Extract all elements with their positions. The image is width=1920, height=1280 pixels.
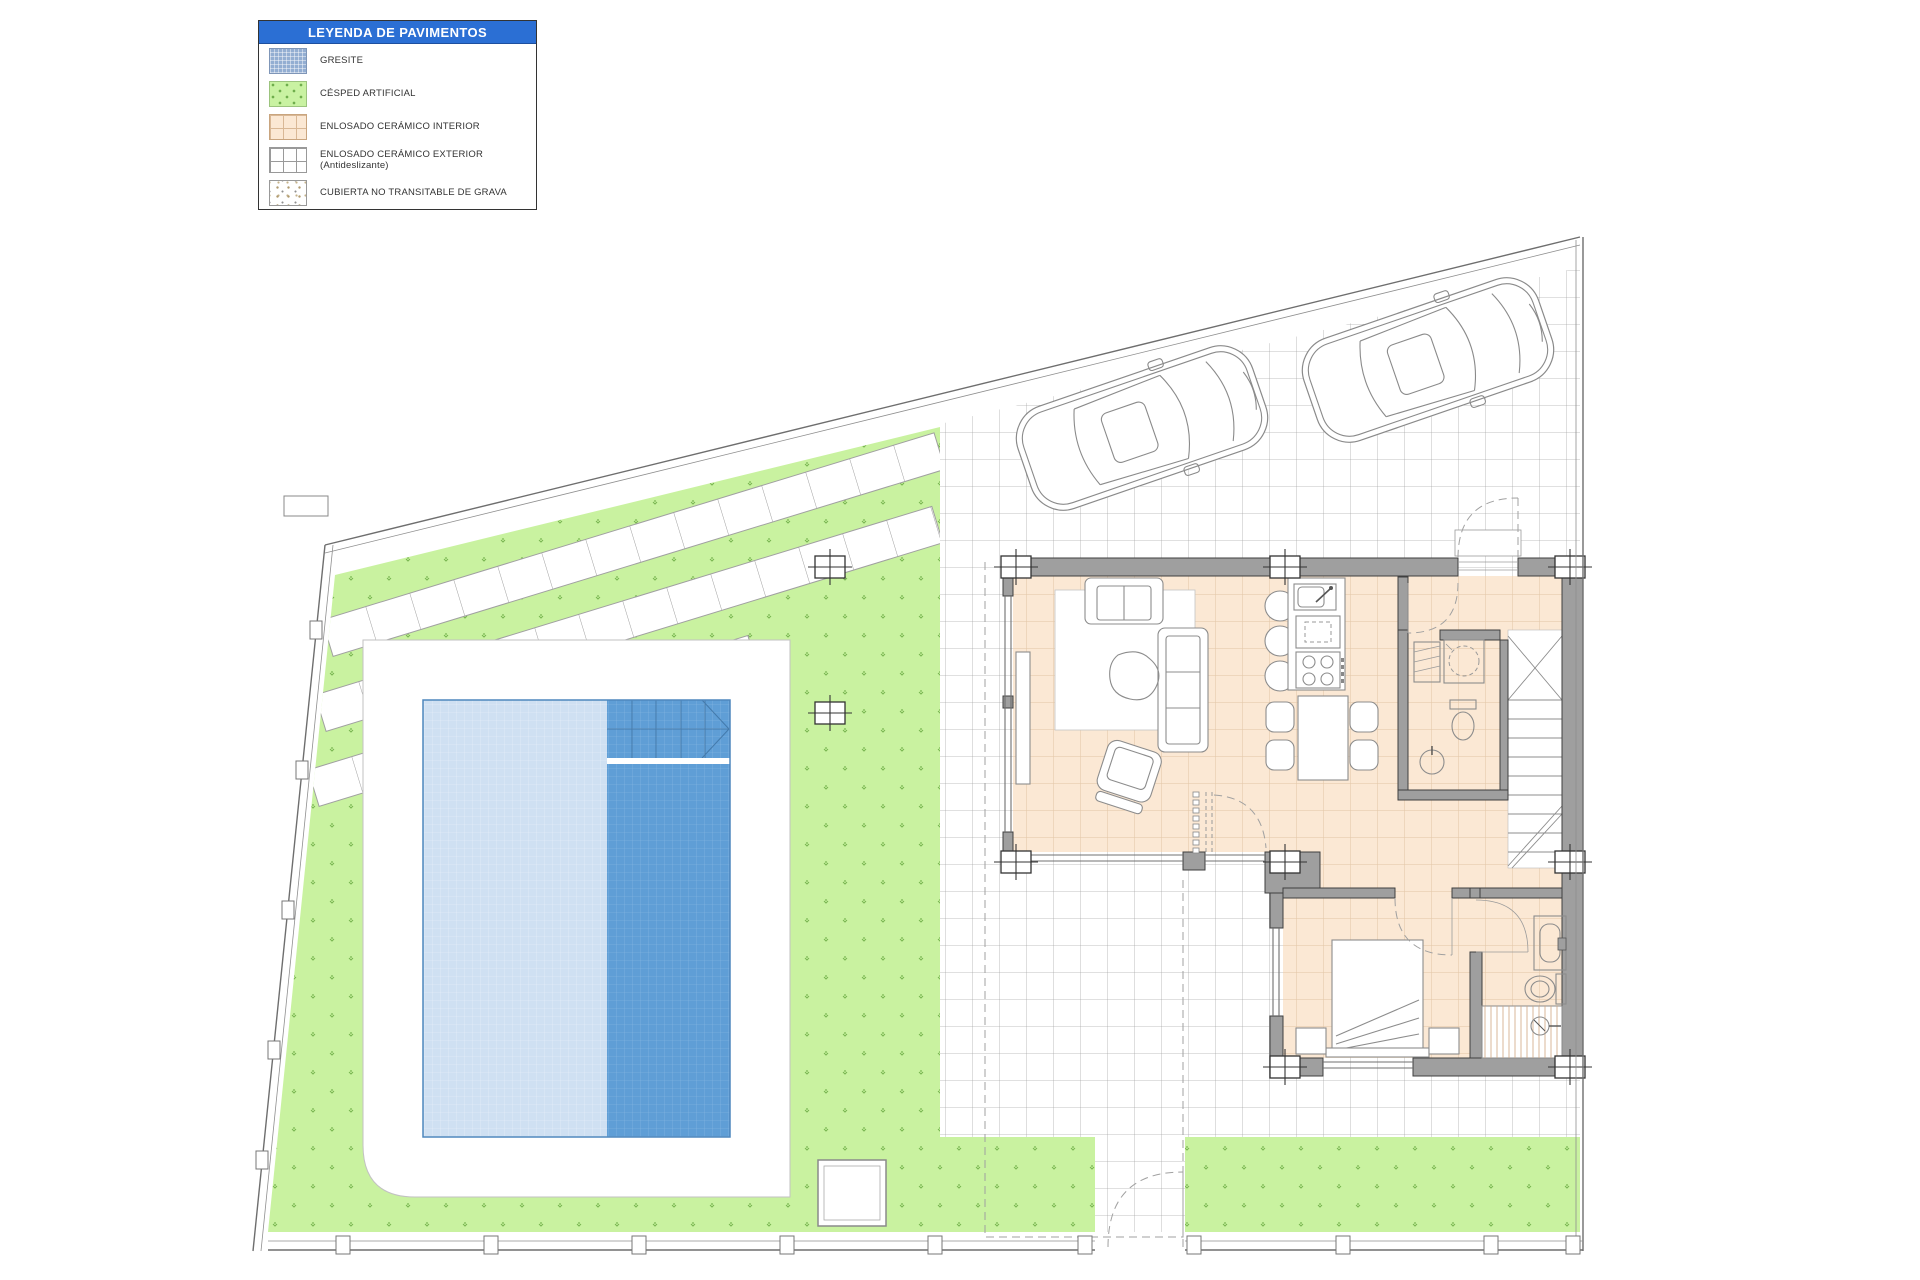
- dining-chair: [1266, 740, 1294, 770]
- kitchen: [1265, 578, 1345, 691]
- dining-table: [1298, 696, 1348, 780]
- wall-north-left: [1003, 558, 1458, 576]
- legend-item-label: CUBIERTA NO TRANSITABLE DE GRAVA: [320, 187, 507, 198]
- exterior-tile-swatch-icon: [269, 147, 307, 173]
- wall-utility-south: [1398, 790, 1508, 800]
- dining-chair: [1350, 702, 1378, 732]
- legend-item-label: ENLOSADO CERÁMICO EXTERIOR (Antideslizan…: [320, 149, 536, 171]
- sofa: [1158, 628, 1208, 752]
- dining-chair: [1350, 740, 1378, 770]
- legend-item-label: GRESITE: [320, 55, 363, 66]
- legend-title: LEYENDA DE PAVIMENTOS: [259, 21, 536, 44]
- wall-bathroom-west: [1470, 952, 1482, 1058]
- pool-step-edge: [607, 758, 730, 764]
- wall-bedroom-west-upper: [1270, 893, 1283, 928]
- tv-sideboard: [1016, 652, 1030, 784]
- shower: [1482, 1006, 1562, 1058]
- entrance-step: [1455, 530, 1521, 556]
- pool-deep-zone: [607, 700, 730, 1137]
- legend-item-label: ENLOSADO CERÁMICO INTERIOR: [320, 121, 480, 132]
- legend-item-cesped-artificial: CÉSPED ARTIFICIAL: [259, 77, 536, 110]
- garden-pad: [818, 1160, 886, 1226]
- wall-bathroom-north: [1480, 888, 1562, 898]
- loveseat: [1085, 578, 1163, 624]
- grass-patch-left-of-gate: [940, 1137, 1095, 1232]
- swimming-pool: [423, 700, 730, 1137]
- pool-shallow-zone: [423, 700, 607, 1137]
- floor-plan-page: LEYENDA DE PAVIMENTOS GRESITE CÉSPED ART…: [0, 0, 1920, 1280]
- boundary-corner-pillar: [284, 496, 328, 516]
- wall-south-pier: [1183, 852, 1205, 870]
- wall-utility-north: [1440, 630, 1500, 640]
- dining-chair: [1266, 702, 1294, 732]
- legend-item-enlosado-interior: ENLOSADO CERÁMICO INTERIOR: [259, 110, 536, 143]
- wall-utility-west: [1398, 630, 1408, 800]
- grass-patch-bottom-right: [1185, 1137, 1580, 1232]
- legend-panel: LEYENDA DE PAVIMENTOS GRESITE CÉSPED ART…: [258, 20, 537, 210]
- legend-item-cubierta-grava: CUBIERTA NO TRANSITABLE DE GRAVA: [259, 176, 536, 209]
- double-bed: [1326, 940, 1429, 1057]
- wall-bedroom-west-lower: [1270, 1016, 1283, 1058]
- legend-item-label: CÉSPED ARTIFICIAL: [320, 88, 416, 99]
- legend-item-gresite: GRESITE: [259, 44, 536, 77]
- nightstand-left: [1296, 1028, 1326, 1054]
- wall-bedroom-north: [1283, 888, 1395, 898]
- stair-floor: [1508, 630, 1562, 868]
- interior-tile-swatch-icon: [269, 114, 307, 140]
- headboard: [1326, 1048, 1429, 1057]
- gravel-swatch-icon: [269, 180, 307, 206]
- nightstand-right: [1429, 1028, 1459, 1054]
- wall-utility-east: [1500, 640, 1508, 800]
- legend-item-enlosado-exterior: ENLOSADO CERÁMICO EXTERIOR (Antideslizan…: [259, 143, 536, 176]
- wall-east: [1562, 558, 1583, 1076]
- grass-swatch-icon: [269, 81, 307, 107]
- gresite-swatch-icon: [269, 48, 307, 74]
